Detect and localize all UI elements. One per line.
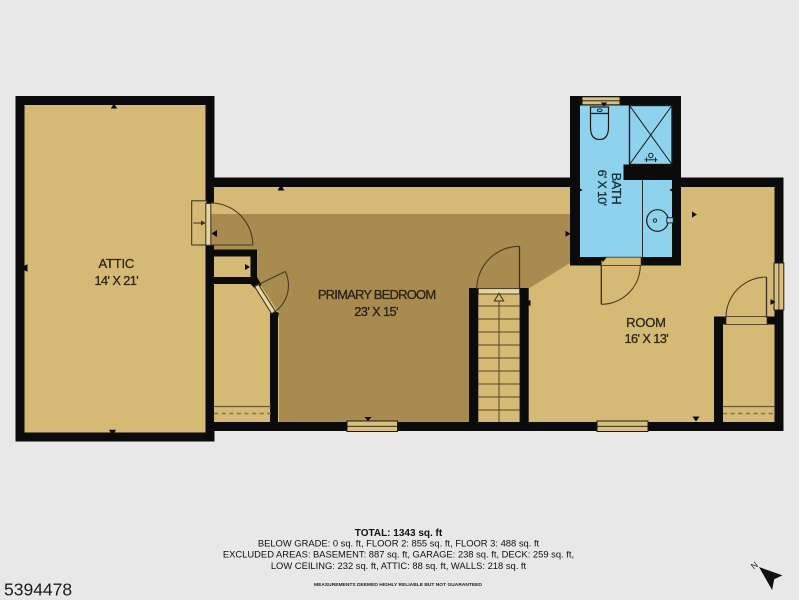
svg-text:BELOW GRADE: 0 sq. ft, FLOOR 2: BELOW GRADE: 0 sq. ft, FLOOR 2: 855 sq. … [258, 537, 540, 548]
svg-text:MEASUREMENTS DEEMED HIGHLY REL: MEASUREMENTS DEEMED HIGHLY RELIABLE BUT … [314, 582, 482, 588]
svg-text:16' X 13': 16' X 13' [624, 331, 668, 346]
svg-text:5394478: 5394478 [4, 580, 72, 600]
svg-text:EXCLUDED AREAS: BASEMENT: 887: EXCLUDED AREAS: BASEMENT: 887 sq. ft, GA… [223, 549, 574, 560]
svg-text:ROOM: ROOM [626, 315, 666, 330]
svg-text:LOW CEILING: 232 sq. ft, ATTIC: LOW CEILING: 232 sq. ft, ATTIC: 88 sq. f… [271, 560, 527, 571]
svg-text:23' X 15': 23' X 15' [354, 304, 398, 319]
svg-text:6' X 10': 6' X 10' [595, 170, 609, 206]
svg-text:BATH: BATH [609, 173, 623, 205]
svg-text:PRIMARY BEDROOM: PRIMARY BEDROOM [318, 287, 436, 302]
svg-text:14' X 21': 14' X 21' [94, 273, 138, 288]
svg-text:ATTIC: ATTIC [99, 256, 135, 271]
